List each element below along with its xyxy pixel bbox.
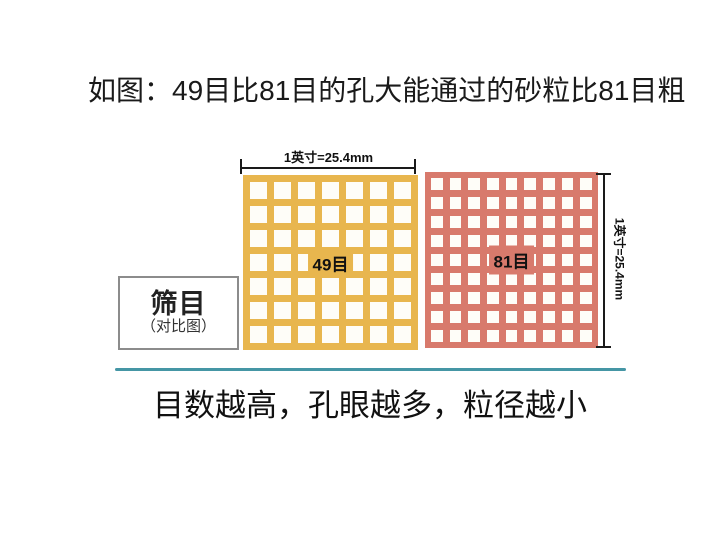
mesh-hole (450, 292, 462, 304)
mesh-hole (562, 273, 574, 285)
mesh-hole (562, 178, 574, 190)
mesh-hole (346, 278, 363, 295)
mesh-hole (487, 197, 499, 209)
mesh-hole (468, 235, 480, 247)
mesh-hole (524, 330, 536, 342)
mesh-hole (487, 178, 499, 190)
mesh-hole (322, 326, 339, 343)
caption-text: 目数越高，孔眼越多，粒径越小 (100, 380, 640, 425)
mesh-hole (394, 182, 411, 199)
mesh-hole (506, 197, 518, 209)
mesh-hole (322, 182, 339, 199)
mesh-hole (322, 302, 339, 319)
mesh-hole (394, 254, 411, 271)
mesh-hole (562, 311, 574, 323)
mesh-hole (562, 330, 574, 342)
right-dimension-tick-top (596, 173, 611, 175)
mesh-hole (524, 197, 536, 209)
mesh-hole (450, 311, 462, 323)
mesh-hole (580, 254, 592, 266)
mesh-49-grid: 49目 (243, 175, 418, 350)
mesh-hole (450, 197, 462, 209)
mesh-hole (346, 182, 363, 199)
mesh-hole (580, 216, 592, 228)
mesh-hole (580, 197, 592, 209)
mesh-hole (250, 278, 267, 295)
divider-line (115, 368, 626, 371)
mesh-hole (431, 254, 443, 266)
mesh-hole (506, 311, 518, 323)
mesh-hole (274, 326, 291, 343)
mesh-hole (274, 206, 291, 223)
mesh-hole (450, 330, 462, 342)
top-dimension-line (241, 167, 416, 169)
mesh-hole (506, 273, 518, 285)
mesh-49-label: 49目 (308, 248, 354, 277)
mesh-81-label: 81目 (489, 246, 535, 275)
mesh-81-grid: 81目 (425, 172, 598, 348)
mesh-hole (562, 197, 574, 209)
mesh-hole (346, 326, 363, 343)
mesh-hole (543, 235, 555, 247)
mesh-hole (524, 178, 536, 190)
mesh-hole (468, 330, 480, 342)
mesh-hole (468, 273, 480, 285)
mesh-hole (370, 278, 387, 295)
mesh-hole (274, 182, 291, 199)
mesh-hole (580, 330, 592, 342)
mesh-hole (394, 302, 411, 319)
mesh-hole (250, 302, 267, 319)
mesh-hole (562, 235, 574, 247)
mesh-hole (450, 216, 462, 228)
mesh-hole (394, 278, 411, 295)
mesh-hole (580, 273, 592, 285)
top-dimension-tick-left (240, 159, 242, 174)
mesh-hole (250, 254, 267, 271)
mesh-hole (468, 197, 480, 209)
mesh-hole (431, 178, 443, 190)
mesh-hole (543, 178, 555, 190)
mesh-hole (487, 216, 499, 228)
mesh-hole (370, 230, 387, 247)
mesh-hole (370, 182, 387, 199)
mesh-hole (450, 254, 462, 266)
mesh-hole (450, 178, 462, 190)
mesh-hole (468, 216, 480, 228)
legend-box: 筛目 （对比图） (118, 276, 239, 350)
mesh-hole (487, 311, 499, 323)
legend-box-title: 筛目 (151, 290, 207, 318)
top-dimension-tick-right (414, 159, 416, 174)
mesh-hole (580, 311, 592, 323)
mesh-hole (487, 330, 499, 342)
mesh-hole (580, 292, 592, 304)
mesh-hole (543, 311, 555, 323)
mesh-hole (468, 254, 480, 266)
mesh-hole (346, 230, 363, 247)
legend-box-subtitle: （对比图） (141, 318, 216, 336)
mesh-hole (543, 273, 555, 285)
mesh-hole (543, 197, 555, 209)
right-dimension-label: 1英寸=25.4mm (612, 218, 629, 300)
mesh-hole (431, 235, 443, 247)
mesh-hole (468, 178, 480, 190)
mesh-hole (431, 197, 443, 209)
mesh-hole (274, 254, 291, 271)
mesh-hole (562, 254, 574, 266)
mesh-hole (543, 330, 555, 342)
mesh-hole (298, 206, 315, 223)
mesh-hole (274, 278, 291, 295)
mesh-hole (346, 206, 363, 223)
mesh-hole (450, 235, 462, 247)
mesh-hole (322, 206, 339, 223)
mesh-hole (431, 292, 443, 304)
mesh-hole (274, 230, 291, 247)
mesh-hole (543, 216, 555, 228)
mesh-hole (487, 273, 499, 285)
mesh-hole (580, 235, 592, 247)
mesh-hole (562, 216, 574, 228)
mesh-hole (250, 230, 267, 247)
mesh-hole (506, 178, 518, 190)
top-dimension-label: 1英寸=25.4mm (241, 147, 416, 166)
mesh-hole (506, 216, 518, 228)
mesh-hole (370, 206, 387, 223)
mesh-hole (506, 330, 518, 342)
mesh-hole (298, 326, 315, 343)
mesh-hole (562, 292, 574, 304)
slide-canvas: 如图：49目比81目的孔大能通过的砂粒比81目粗 1英寸=25.4mm 49目 … (0, 0, 720, 540)
mesh-hole (298, 182, 315, 199)
mesh-hole (250, 326, 267, 343)
mesh-hole (431, 216, 443, 228)
mesh-hole (468, 292, 480, 304)
mesh-hole (394, 206, 411, 223)
mesh-hole (298, 302, 315, 319)
mesh-hole (524, 273, 536, 285)
mesh-hole (250, 206, 267, 223)
mesh-hole (370, 302, 387, 319)
mesh-hole (346, 302, 363, 319)
mesh-hole (450, 273, 462, 285)
mesh-hole (524, 311, 536, 323)
mesh-hole (524, 292, 536, 304)
mesh-hole (370, 254, 387, 271)
mesh-hole (431, 330, 443, 342)
mesh-hole (394, 230, 411, 247)
mesh-hole (580, 178, 592, 190)
mesh-hole (370, 326, 387, 343)
mesh-hole (524, 216, 536, 228)
mesh-hole (543, 254, 555, 266)
mesh-hole (543, 292, 555, 304)
mesh-hole (487, 292, 499, 304)
mesh-hole (274, 302, 291, 319)
mesh-hole (298, 278, 315, 295)
mesh-hole (431, 273, 443, 285)
mesh-hole (322, 278, 339, 295)
mesh-hole (468, 311, 480, 323)
mesh-hole (506, 292, 518, 304)
right-dimension-line (603, 174, 605, 347)
mesh-hole (250, 182, 267, 199)
right-dimension-tick-bottom (596, 346, 611, 348)
mesh-hole (431, 311, 443, 323)
mesh-hole (394, 326, 411, 343)
mesh-hole (322, 230, 339, 247)
slide-title: 如图：49目比81目的孔大能通过的砂粒比81目粗 (88, 74, 685, 108)
mesh-hole (298, 230, 315, 247)
